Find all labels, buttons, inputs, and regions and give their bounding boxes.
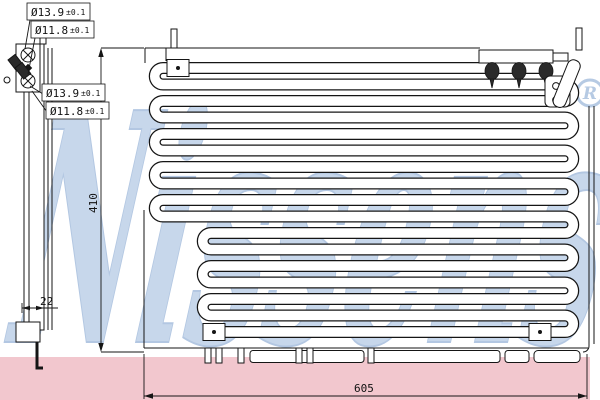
top-tab-right	[576, 28, 582, 50]
port-label-value: Ø11.8	[35, 24, 68, 37]
port-label-value: Ø11.8	[50, 105, 83, 118]
tube-bracket-bottom-right	[529, 324, 551, 341]
width-dimension-text: 605	[354, 382, 374, 395]
tube-bracket-bottom-left	[203, 324, 225, 341]
depth-dimension-text: 22	[40, 295, 53, 308]
height-dimension-text: 410	[87, 193, 100, 213]
port-label-tolerance: ±0.1	[66, 8, 85, 17]
condenser-technical-drawing: Nissens R	[0, 0, 600, 400]
port-label-value: Ø13.9	[31, 6, 64, 19]
top-tab-left	[171, 29, 177, 48]
port-label-value: Ø13.9	[46, 87, 79, 100]
port-label-tolerance: ±0.1	[81, 89, 100, 98]
technical-drawing-page: Nissens R	[0, 0, 600, 400]
tube-bracket-top-left	[167, 60, 189, 77]
port-label-tolerance: ±0.1	[85, 107, 104, 116]
svg-text:R: R	[582, 84, 597, 104]
port-label-tolerance: ±0.1	[70, 26, 89, 35]
